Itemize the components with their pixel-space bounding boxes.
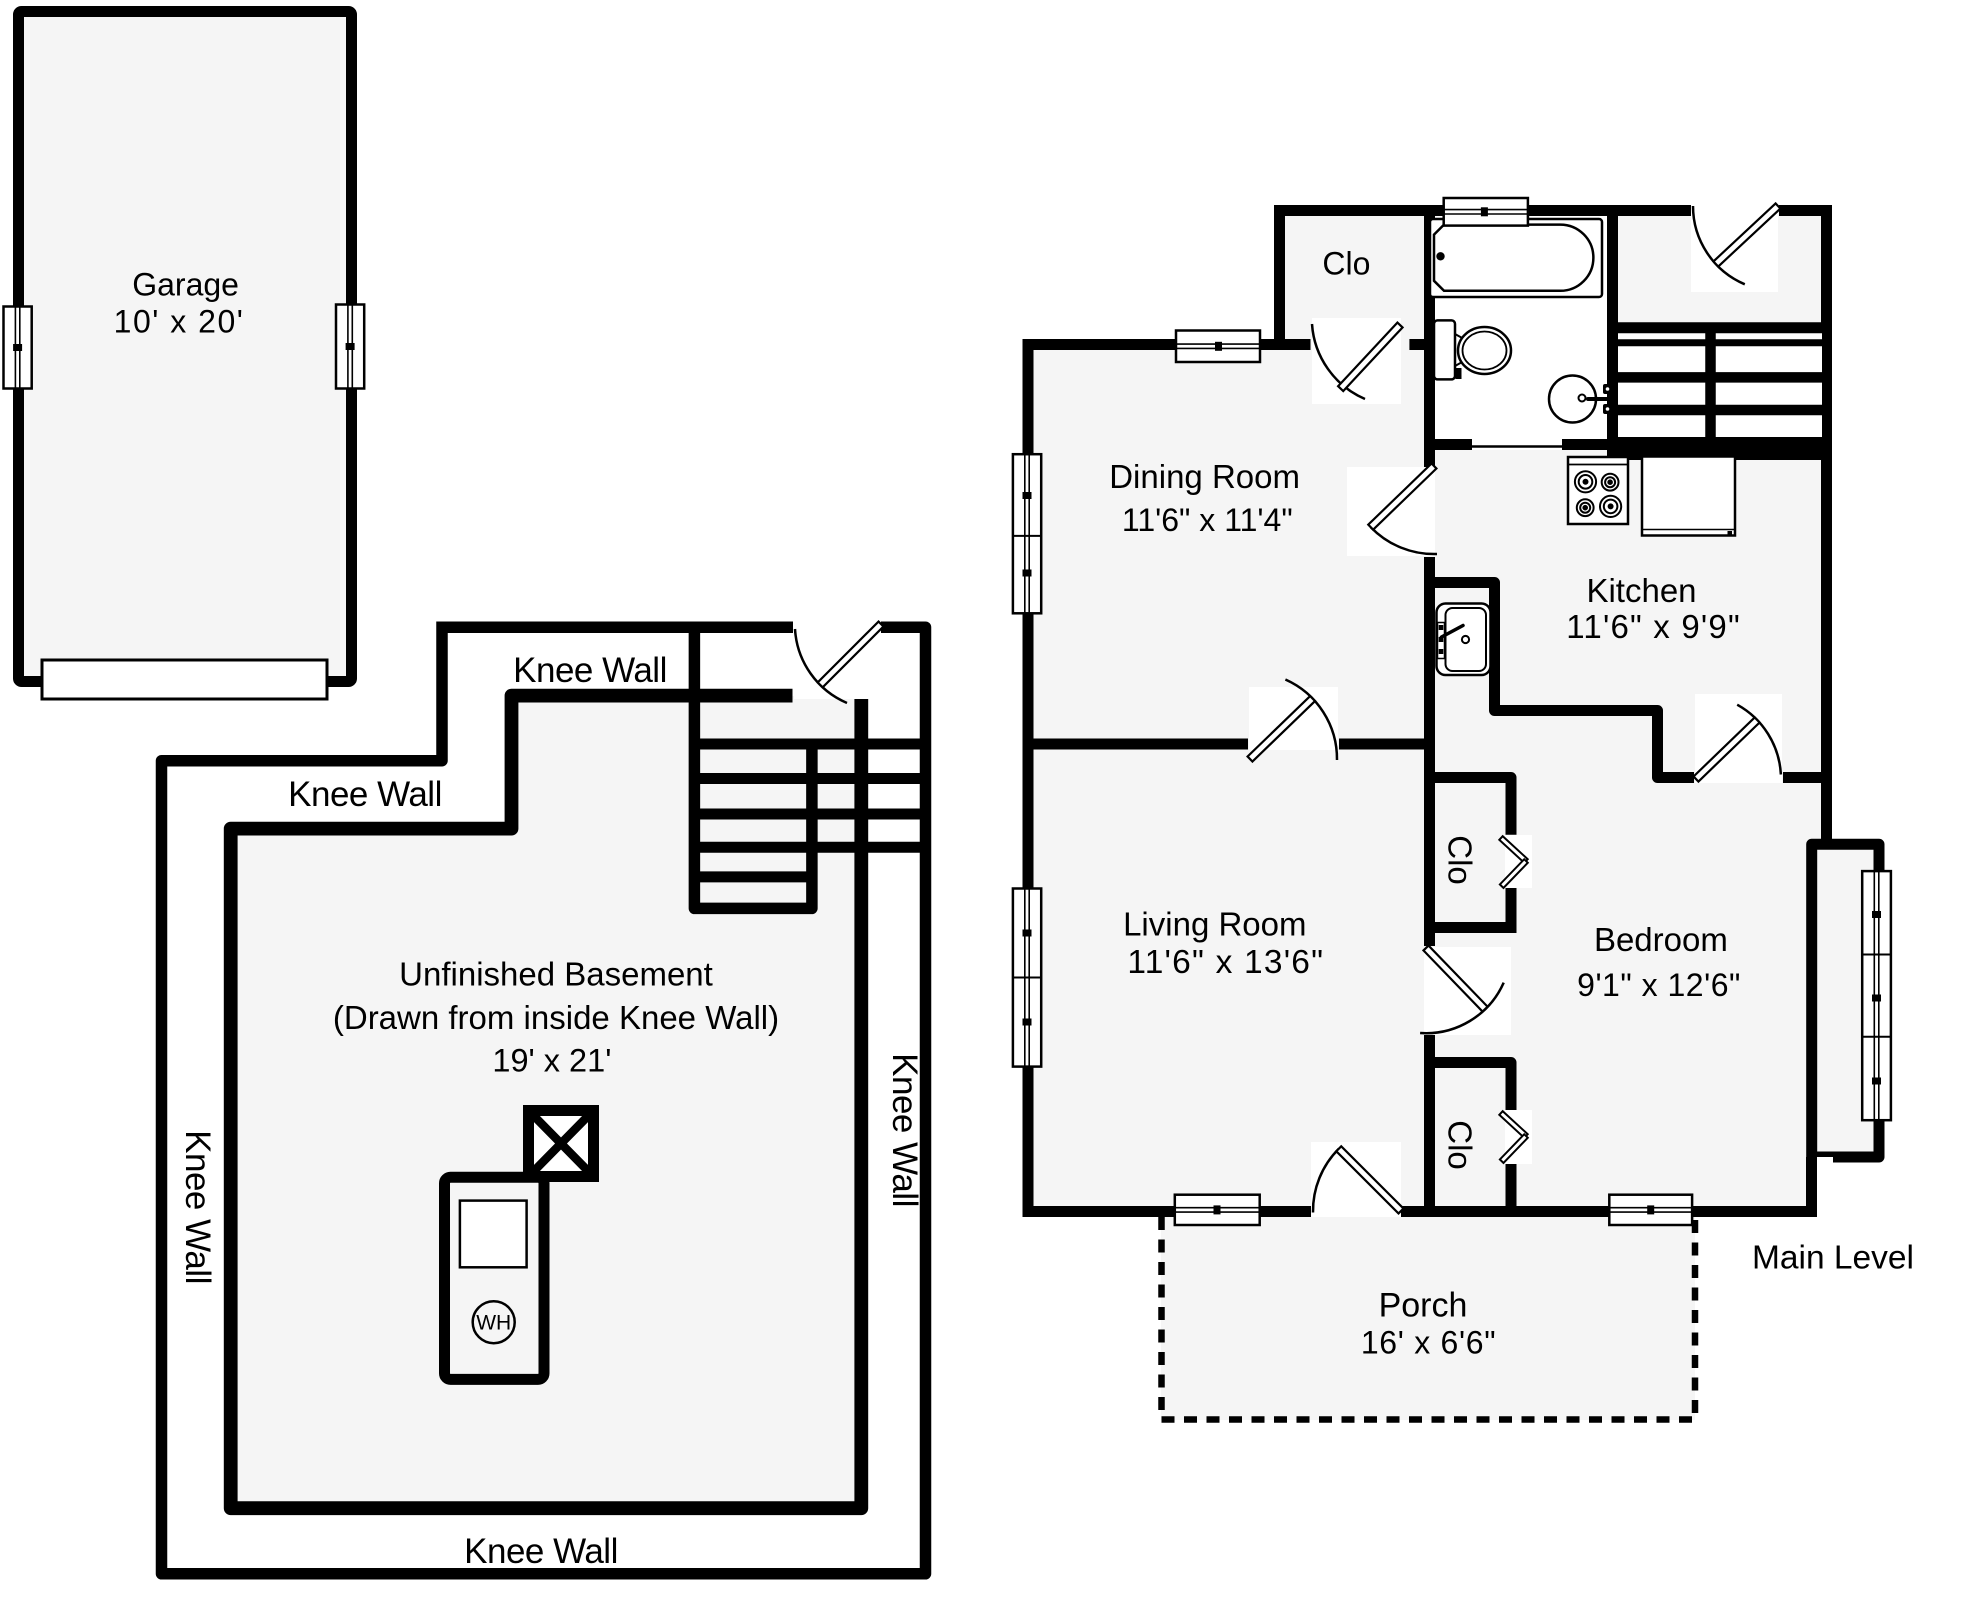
svg-text:19' x 21': 19' x 21' [492, 1043, 611, 1079]
svg-text:Garage: Garage [132, 266, 239, 302]
svg-text:11'6" x 11'4": 11'6" x 11'4" [1122, 502, 1293, 538]
svg-text:Knee Wall: Knee Wall [178, 1130, 217, 1284]
svg-text:9'1" x 12'6": 9'1" x 12'6" [1577, 967, 1741, 1003]
svg-text:Knee Wall: Knee Wall [464, 1532, 618, 1571]
svg-text:Knee Wall: Knee Wall [288, 775, 442, 814]
svg-text:10' x 20': 10' x 20' [114, 304, 245, 340]
svg-text:Main Level: Main Level [1752, 1240, 1914, 1277]
svg-text:11'6" x 9'9": 11'6" x 9'9" [1566, 608, 1741, 645]
svg-text:Knee Wall: Knee Wall [513, 651, 667, 690]
svg-text:(Drawn from inside Knee Wall): (Drawn from inside Knee Wall) [333, 999, 779, 1036]
svg-text:WH: WH [476, 1312, 511, 1335]
svg-text:Unfinished Basement: Unfinished Basement [399, 956, 713, 993]
svg-text:Bedroom: Bedroom [1594, 921, 1728, 958]
svg-text:Clo: Clo [1322, 246, 1370, 282]
svg-text:Dining Room: Dining Room [1109, 458, 1300, 495]
svg-text:Porch: Porch [1379, 1287, 1468, 1325]
svg-text:Kitchen: Kitchen [1586, 572, 1696, 609]
svg-text:Clo: Clo [1442, 835, 1479, 885]
svg-text:Clo: Clo [1442, 1120, 1479, 1170]
svg-text:Knee Wall: Knee Wall [885, 1053, 924, 1207]
svg-text:16' x 6'6": 16' x 6'6" [1361, 1325, 1497, 1361]
svg-text:11'6" x 13'6": 11'6" x 13'6" [1127, 944, 1324, 981]
svg-text:Living Room: Living Room [1123, 905, 1306, 942]
